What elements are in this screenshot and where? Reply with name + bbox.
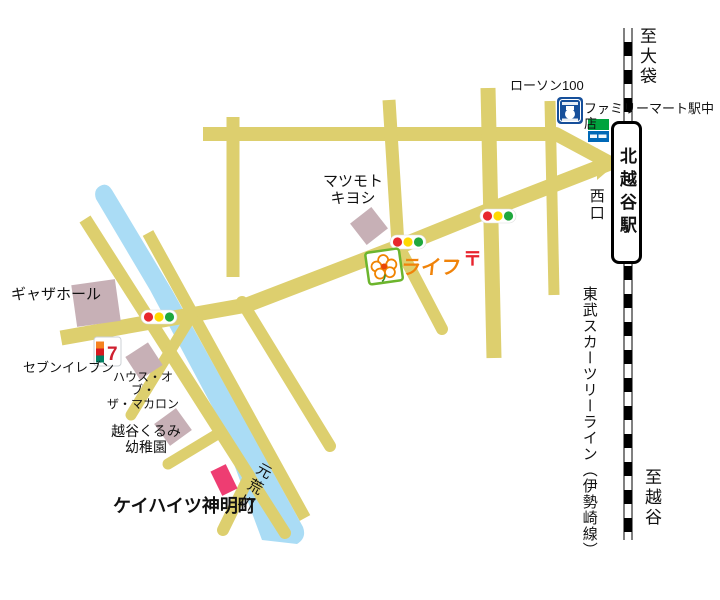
station-name: 北越谷駅 — [614, 147, 639, 239]
map-canvas: 7 — [0, 0, 720, 600]
direction-to-koshigaya: 至越谷 — [642, 468, 661, 528]
direction-to-obukuro: 至大袋 — [637, 27, 656, 87]
post-office-mark: 〒 — [463, 249, 482, 270]
road-vertical-mid — [389, 100, 398, 245]
gather-hall-label: ギャザホール — [11, 287, 101, 304]
destination-building — [210, 464, 237, 496]
traffic-light — [390, 235, 426, 249]
station-kitakoshigaya: 北越谷駅 — [611, 121, 642, 264]
road-network — [61, 88, 617, 533]
life-label: ライフ — [400, 257, 462, 279]
matsumoto-building — [350, 207, 388, 245]
familymart-label: ファミリーマート駅中店 — [584, 102, 720, 131]
life-logo — [365, 248, 403, 284]
seven-eleven-label: セブンイレブン — [23, 361, 114, 376]
macaron-label: ハウス・オブ・ ザ・マカロン — [104, 371, 182, 411]
matsumoto-kiyoshi-label: マツモト キヨシ — [316, 174, 390, 208]
access-map: 7 北越谷駅 至大袋 ファミリーマート駅中店 ローソン100 西口 東武スカーツ… — [0, 0, 720, 600]
lawson-label: ローソン100 — [510, 79, 584, 94]
traffic-light — [141, 310, 177, 324]
railway-line-label: 東武スカーツリーライン（伊勢崎線） — [580, 286, 597, 558]
road-vertical-east — [550, 101, 554, 295]
lawson-logo — [557, 97, 583, 124]
traffic-light — [480, 209, 516, 223]
west-exit-label: 西口 — [587, 188, 604, 222]
kindergarten-label: 越谷くるみ 幼稚園 — [104, 424, 188, 455]
river-motoarakawa — [95, 185, 304, 544]
